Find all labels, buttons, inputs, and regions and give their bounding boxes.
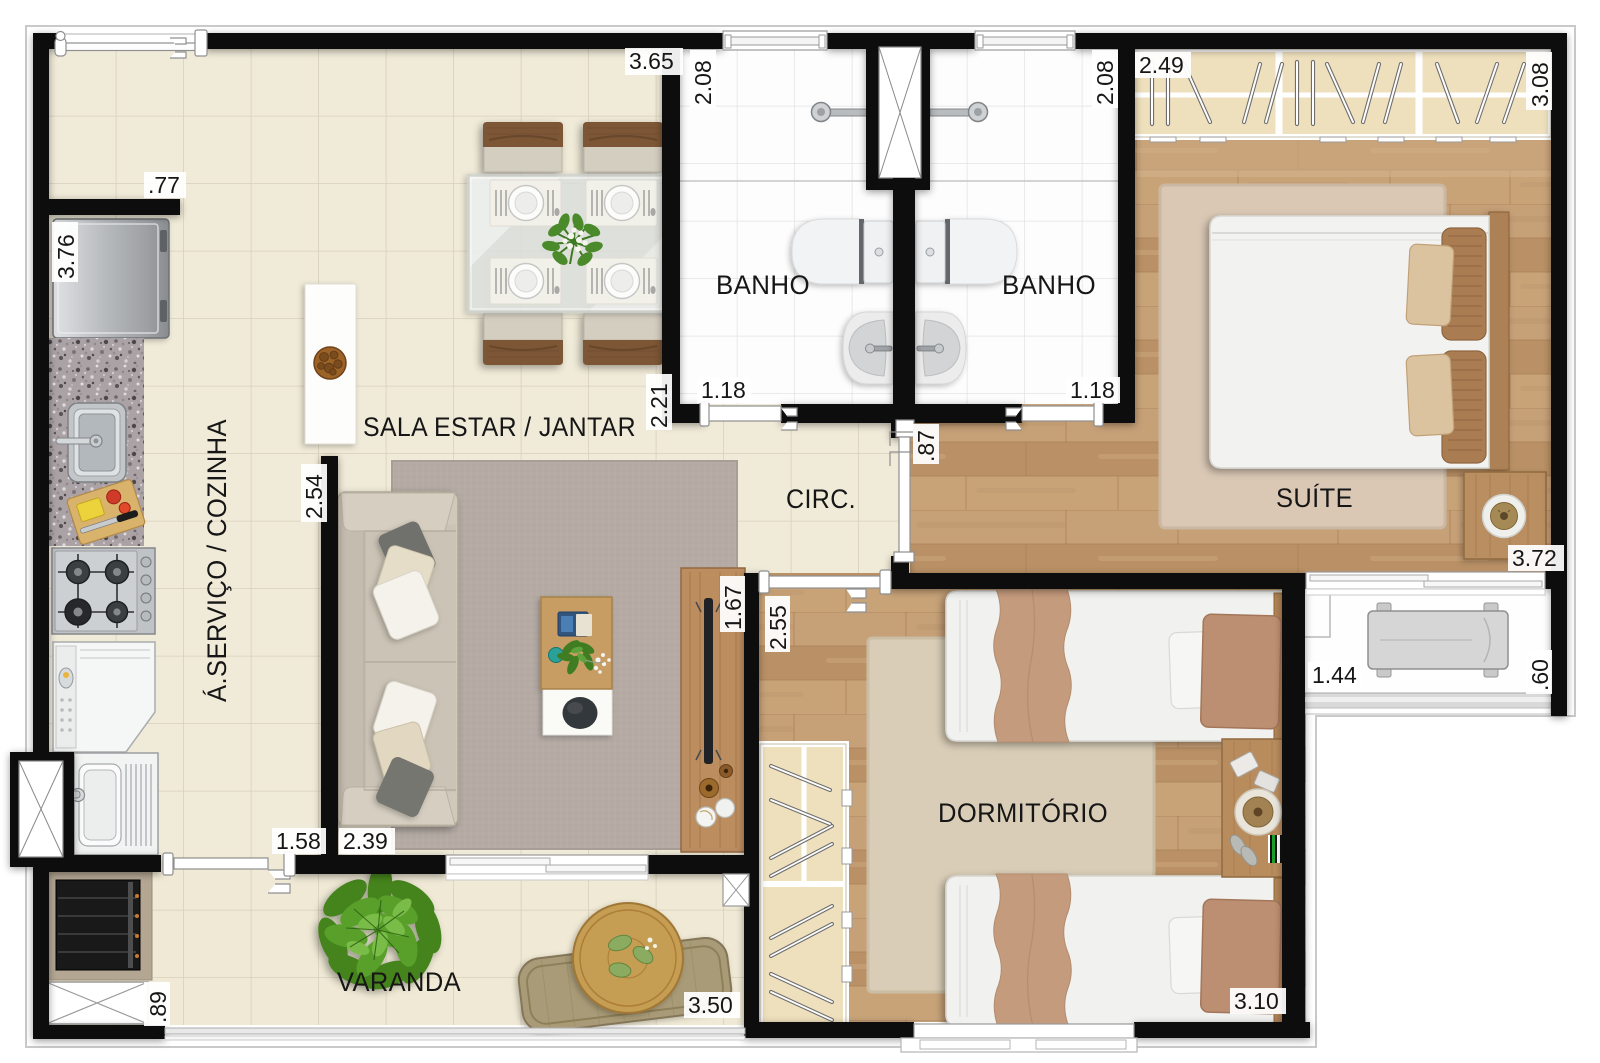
svg-text:BANHO: BANHO <box>716 270 810 300</box>
svg-text:1.58: 1.58 <box>276 828 321 854</box>
svg-text:2.39: 2.39 <box>343 828 388 854</box>
svg-text:2.21: 2.21 <box>646 383 672 428</box>
svg-text:.77: .77 <box>148 172 180 198</box>
svg-text:2.08: 2.08 <box>1092 60 1118 105</box>
svg-text:1.67: 1.67 <box>720 585 746 630</box>
svg-text:DORMITÓRIO: DORMITÓRIO <box>938 797 1108 828</box>
svg-text:.87: .87 <box>913 430 939 462</box>
svg-text:3.08: 3.08 <box>1527 62 1553 107</box>
svg-text:3.50: 3.50 <box>688 992 733 1018</box>
svg-text:3.76: 3.76 <box>53 234 79 279</box>
svg-text:2.08: 2.08 <box>690 60 716 105</box>
svg-text:2.49: 2.49 <box>1139 52 1184 78</box>
svg-text:CIRC.: CIRC. <box>786 484 856 514</box>
svg-text:2.55: 2.55 <box>765 605 791 650</box>
svg-text:1.18: 1.18 <box>1070 377 1115 403</box>
svg-text:Á.SERVIÇO / COZINHA: Á.SERVIÇO / COZINHA <box>202 419 232 702</box>
svg-text:.60: .60 <box>1527 659 1553 691</box>
svg-text:1.44: 1.44 <box>1312 662 1357 688</box>
svg-text:SUÍTE: SUÍTE <box>1276 483 1353 513</box>
svg-text:VARANDA: VARANDA <box>337 967 461 997</box>
svg-text:BANHO: BANHO <box>1002 270 1096 300</box>
svg-text:2.54: 2.54 <box>301 474 327 519</box>
svg-text:1.18: 1.18 <box>701 377 746 403</box>
svg-text:.89: .89 <box>145 991 171 1023</box>
svg-text:3.72: 3.72 <box>1512 545 1557 571</box>
svg-text:3.10: 3.10 <box>1234 988 1279 1014</box>
svg-text:3.65: 3.65 <box>629 48 674 74</box>
svg-text:SALA ESTAR / JANTAR: SALA ESTAR / JANTAR <box>363 412 636 442</box>
